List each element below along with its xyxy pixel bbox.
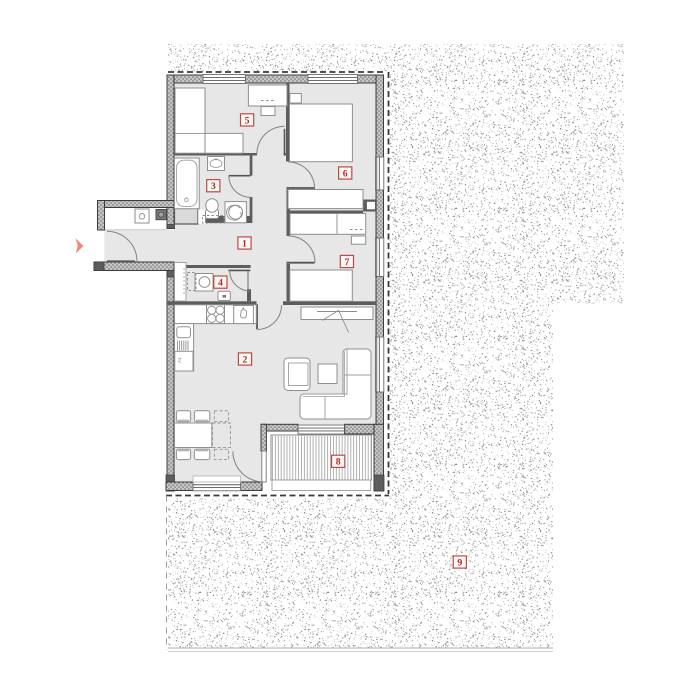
svg-text:2: 2	[243, 354, 248, 365]
svg-text:1: 1	[242, 238, 247, 249]
svg-text:4: 4	[218, 278, 223, 289]
svg-text:A4: A4	[177, 357, 182, 363]
svg-text:7: 7	[344, 257, 349, 268]
svg-text:3: 3	[211, 181, 216, 192]
svg-text:8: 8	[336, 457, 341, 468]
svg-text:9: 9	[457, 557, 462, 568]
svg-text:6: 6	[343, 168, 348, 179]
svg-text:5: 5	[245, 115, 250, 126]
